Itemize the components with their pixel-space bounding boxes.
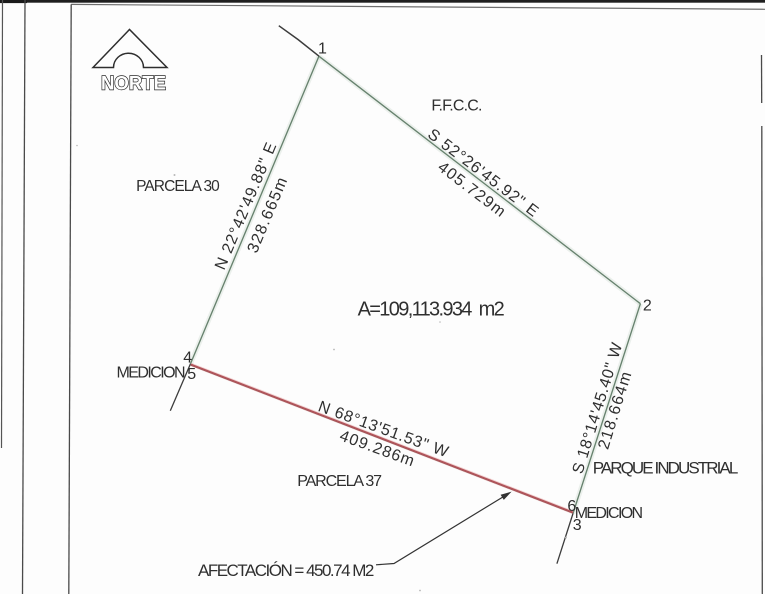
- svg-text:PARCELA 30: PARCELA 30: [136, 178, 220, 195]
- svg-text:NORTE: NORTE: [101, 74, 166, 95]
- svg-text:A=109,113.934 m2: A=109,113.934 m2: [358, 298, 505, 320]
- svg-text:PARQUE INDUSTRIAL: PARQUE INDUSTRIAL: [593, 458, 739, 477]
- svg-text:MEDICION: MEDICION: [575, 505, 643, 522]
- svg-text:3: 3: [573, 517, 582, 534]
- svg-text:F.F.C.C.: F.F.C.C.: [431, 97, 482, 114]
- svg-text:4: 4: [183, 350, 192, 367]
- svg-text:2: 2: [643, 298, 652, 315]
- svg-text:PARCELA 37: PARCELA 37: [297, 473, 382, 490]
- svg-text:AFECTACIÓN = 450.74 M2: AFECTACIÓN = 450.74 M2: [198, 561, 374, 580]
- svg-text:1: 1: [318, 41, 327, 58]
- svg-text:5: 5: [187, 366, 196, 383]
- svg-text:6: 6: [567, 498, 576, 515]
- svg-text:MEDICION: MEDICION: [117, 364, 186, 381]
